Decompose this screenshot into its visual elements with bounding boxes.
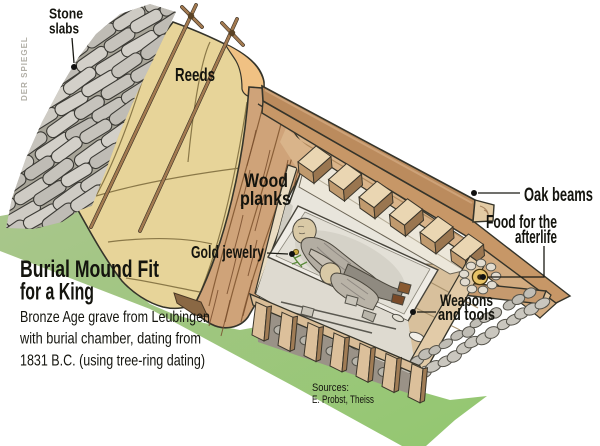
svg-text:planks: planks <box>240 188 291 210</box>
svg-text:Sources:: Sources: <box>312 382 349 394</box>
svg-text:E. Probst, Theiss: E. Probst, Theiss <box>312 394 374 406</box>
svg-text:and tools: and tools <box>438 305 495 324</box>
svg-text:Bronze Age grave from Leubinge: Bronze Age grave from Leubingen <box>20 309 210 326</box>
svg-text:Reeds: Reeds <box>175 64 215 85</box>
svg-text:DER SPIEGEL: DER SPIEGEL <box>20 36 29 101</box>
svg-text:afterlife: afterlife <box>515 226 557 247</box>
svg-text:1831 B.C. (using tree-ring dat: 1831 B.C. (using tree-ring dating) <box>20 353 205 370</box>
svg-text:Stone: Stone <box>49 7 83 23</box>
svg-text:Gold jewelry: Gold jewelry <box>191 242 264 262</box>
svg-text:slabs: slabs <box>49 22 79 38</box>
svg-text:for a King: for a King <box>20 279 94 306</box>
svg-text:with burial chamber, dating fr: with burial chamber, dating from <box>19 331 201 348</box>
svg-text:Oak beams: Oak beams <box>524 184 593 206</box>
